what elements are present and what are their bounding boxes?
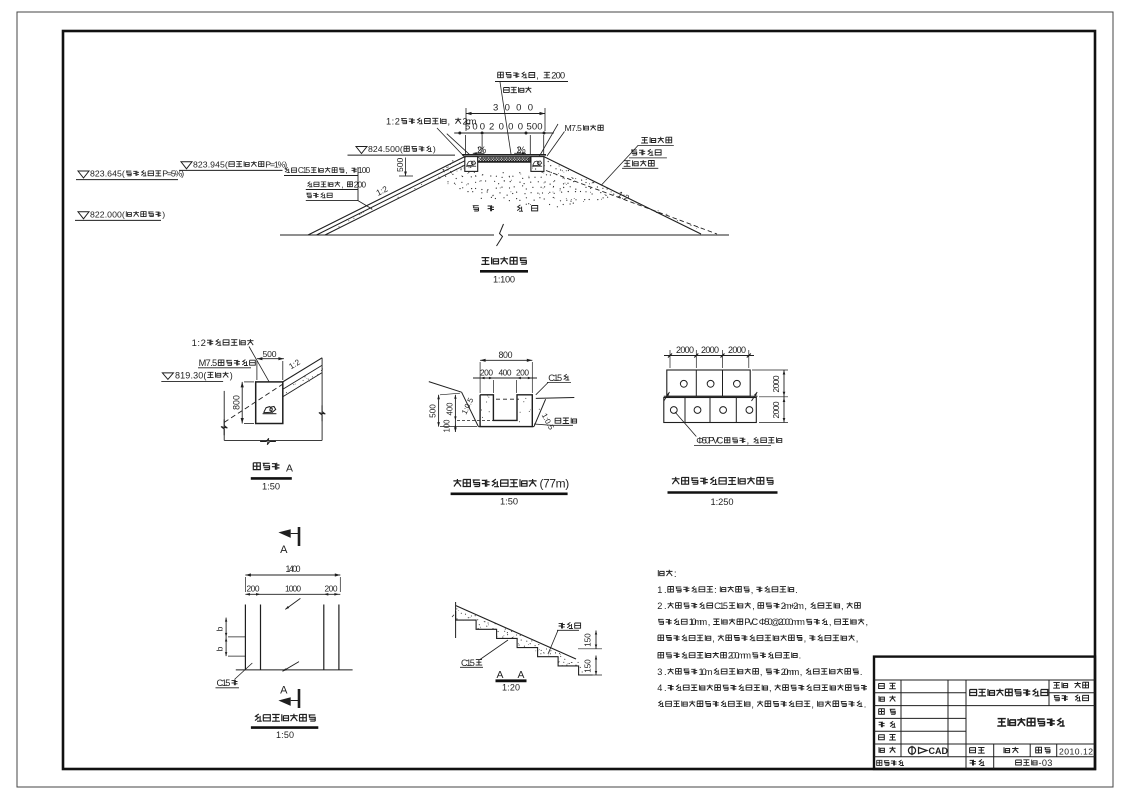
svg-text:200: 200: [247, 584, 260, 594]
svg-text:2000: 2000: [728, 345, 746, 355]
svg-text:A: A: [518, 670, 525, 681]
svg-text:C15: C15: [217, 678, 231, 688]
svg-text:822.000(: 822.000(: [90, 209, 125, 219]
svg-text:800: 800: [232, 395, 242, 410]
svg-text:P=5%): P=5%): [162, 169, 184, 179]
svg-text:100: 100: [358, 166, 371, 175]
svg-text:2.: 2.: [657, 601, 666, 611]
svg-text:PVC: PVC: [744, 617, 758, 627]
svg-text:,: ,: [752, 601, 755, 611]
svg-text:824.500(: 824.500(: [368, 144, 403, 154]
svg-text:.: .: [864, 699, 867, 709]
svg-text:b: b: [216, 626, 225, 631]
svg-text:1:50: 1:50: [276, 730, 294, 740]
svg-text:): ): [433, 144, 436, 154]
svg-text:A: A: [280, 544, 288, 556]
svg-text:4.: 4.: [657, 683, 666, 693]
svg-text:800: 800: [499, 350, 513, 360]
svg-text:200: 200: [480, 367, 493, 377]
svg-text:1:2: 1:2: [386, 117, 400, 127]
svg-text:,: ,: [448, 117, 451, 127]
svg-text:,: ,: [751, 699, 754, 709]
svg-text:200: 200: [551, 71, 565, 81]
svg-text:.: .: [860, 667, 863, 677]
svg-text:,: ,: [804, 601, 807, 611]
svg-text:C15: C15: [298, 166, 311, 175]
svg-text:,: ,: [841, 601, 844, 611]
svg-text:,: ,: [751, 585, 754, 595]
svg-text:(77m): (77m): [540, 477, 570, 491]
svg-text:): ): [230, 370, 233, 380]
svg-text:200: 200: [325, 584, 338, 594]
svg-text:CAD: CAD: [929, 746, 949, 756]
svg-text:1400: 1400: [286, 564, 301, 574]
svg-text:,: ,: [769, 683, 772, 693]
svg-text:3.: 3.: [657, 667, 666, 677]
svg-text:.: .: [799, 651, 802, 661]
svg-text:A: A: [280, 685, 288, 697]
svg-text:500: 500: [263, 349, 277, 359]
svg-text:1000: 1000: [285, 584, 301, 594]
svg-text:10m: 10m: [699, 667, 713, 677]
svg-text:,: ,: [708, 617, 711, 627]
svg-text:1:50: 1:50: [262, 482, 280, 492]
svg-text:A: A: [497, 670, 504, 681]
svg-text:500: 500: [395, 157, 405, 172]
svg-text:.: .: [795, 585, 798, 595]
svg-text:,: ,: [811, 699, 814, 709]
svg-text:823.645(: 823.645(: [90, 169, 125, 179]
svg-text:Φ50PVC: Φ50PVC: [696, 436, 723, 446]
svg-text:1:20: 1:20: [502, 683, 520, 693]
svg-text:1:2: 1:2: [192, 338, 206, 349]
svg-text:200mm: 200mm: [728, 651, 751, 661]
svg-text:,: ,: [800, 667, 803, 677]
svg-text:400: 400: [499, 367, 512, 377]
svg-text:Φ50@2000mm: Φ50@2000mm: [759, 617, 806, 627]
svg-text:,: ,: [712, 633, 715, 643]
svg-text:1:100: 1:100: [493, 275, 515, 285]
svg-text:M7.5: M7.5: [565, 123, 583, 133]
svg-text:): ): [162, 209, 165, 219]
svg-text:20mm: 20mm: [781, 667, 800, 677]
svg-text:,: ,: [760, 667, 763, 677]
svg-text:10mm: 10mm: [689, 617, 708, 627]
svg-text:b: b: [216, 646, 225, 651]
svg-text:2cm: 2cm: [463, 117, 477, 127]
svg-text:,: ,: [866, 617, 869, 627]
svg-text:819.30(: 819.30(: [175, 370, 206, 380]
svg-text:400: 400: [446, 402, 455, 416]
svg-text:M7.5: M7.5: [199, 358, 218, 368]
svg-text:-03: -03: [1039, 758, 1053, 768]
svg-text:P=1%): P=1%): [265, 159, 287, 169]
svg-text:200: 200: [354, 180, 367, 189]
svg-text:C15: C15: [714, 601, 728, 611]
svg-text:2000: 2000: [676, 345, 694, 355]
svg-text:C15: C15: [548, 373, 562, 383]
svg-text:,: ,: [747, 436, 750, 446]
svg-text:,: ,: [804, 633, 807, 643]
svg-text:,: ,: [856, 633, 859, 643]
svg-text:500: 500: [429, 404, 438, 418]
svg-text:,: ,: [829, 617, 832, 627]
svg-text:150: 150: [584, 659, 593, 673]
svg-text:1:50: 1:50: [500, 497, 518, 507]
svg-text:2000: 2000: [701, 345, 719, 355]
svg-text:200: 200: [516, 367, 529, 377]
svg-text:2000: 2000: [771, 401, 781, 418]
svg-text:1.: 1.: [657, 585, 666, 595]
svg-text:,: ,: [536, 71, 539, 81]
svg-text:100: 100: [443, 419, 452, 433]
svg-text::: :: [674, 569, 677, 580]
svg-text:2000: 2000: [771, 375, 781, 392]
svg-text:823.945(: 823.945(: [193, 159, 228, 169]
svg-text:2010.12: 2010.12: [1059, 747, 1093, 757]
svg-text:500: 500: [527, 122, 543, 133]
svg-text:1:250: 1:250: [711, 497, 734, 507]
svg-text:150: 150: [584, 633, 593, 647]
svg-text:C15: C15: [461, 658, 475, 668]
svg-text::: :: [714, 585, 717, 595]
svg-text:,: ,: [341, 180, 343, 189]
svg-text:A: A: [286, 464, 293, 475]
svg-text:,: ,: [345, 166, 347, 175]
svg-text:2m+2m: 2m+2m: [781, 601, 804, 611]
